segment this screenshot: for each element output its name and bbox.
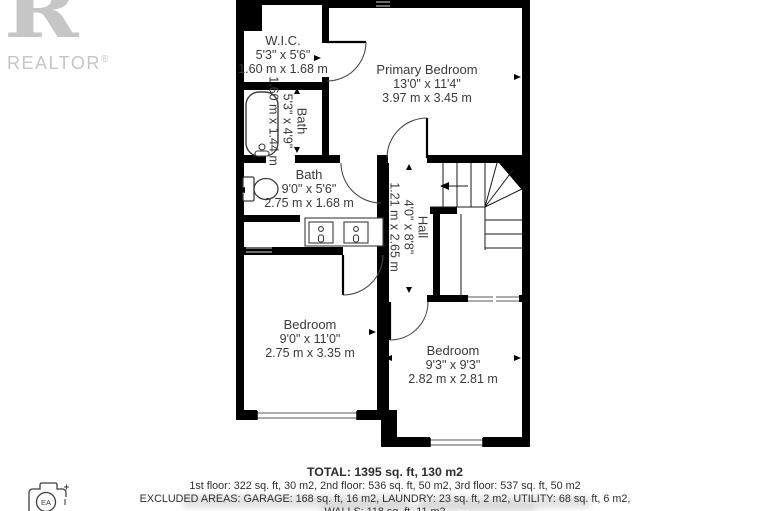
door-bedroom-right	[390, 302, 428, 340]
wall	[236, 215, 300, 222]
wall	[389, 437, 430, 447]
room-name: W.I.C.	[238, 33, 328, 48]
wall	[236, 0, 262, 31]
floor-areas-line: 1st floor: 322 sq. ft, 30 m2, 2nd floor:…	[115, 480, 655, 493]
room-dim-metric: 1.60 m x 1.68 m	[238, 62, 328, 76]
room-name: Bath	[264, 167, 354, 182]
excluded-areas-line: EXCLUDED AREAS: GARAGE: 168 sq. ft, 16 m…	[115, 493, 655, 506]
floor-plan-page: R REALTOR®	[0, 0, 767, 511]
wall	[377, 155, 388, 163]
registered-trademark-symbol: ®	[101, 54, 110, 65]
wall	[322, 77, 329, 163]
wall	[430, 207, 457, 214]
staircase	[430, 163, 524, 298]
room-dim-imperial: 5'3" x 4'9"	[281, 76, 295, 166]
wall	[433, 214, 440, 298]
door-wic	[327, 42, 366, 81]
room-dim-metric: 3.97 m x 3.45 m	[376, 91, 477, 105]
room-name: Bedroom	[265, 317, 355, 332]
window	[257, 410, 357, 420]
wall	[236, 155, 266, 163]
room-label-ensuite-bath: Bath 5'3" x 4'9" 1.60 m x 1.44 m	[267, 76, 310, 166]
room-name: Bedroom	[408, 343, 498, 358]
wall	[499, 163, 522, 190]
room-dim-metric: 2.82 m x 2.81 m	[408, 372, 498, 386]
realtor-logo-wordmark: REALTOR®	[7, 53, 110, 74]
room-dim-imperial: 4'0" x 8'8"	[402, 182, 416, 272]
room-label-hall: Hall 4'0" x 8'8" 1.21 m x 2.65 m	[388, 182, 431, 272]
total-area-line: TOTAL: 1395 sq. ft, 130 m2	[115, 464, 655, 480]
room-name: Bath	[295, 76, 310, 166]
door-primary-bedroom	[387, 118, 427, 158]
realtor-logo-r-glyph: R	[4, 0, 79, 49]
room-dim-metric: 1.60 m x 1.44 m	[267, 76, 281, 166]
area-summary: TOTAL: 1395 sq. ft, 130 m2 1st floor: 32…	[115, 464, 655, 511]
wall	[522, 8, 530, 447]
wall	[236, 410, 257, 420]
camera-badge-label: EA	[41, 498, 51, 507]
room-name: Primary Bedroom	[376, 62, 477, 77]
camera-icon: EA	[29, 483, 69, 511]
double-sink-vanity-icon	[305, 218, 383, 246]
wall	[236, 247, 343, 255]
room-label-primary-bedroom: Primary Bedroom 13'0" x 11'4" 3.97 m x 3…	[376, 62, 477, 105]
stair-direction-arrow	[440, 182, 449, 190]
room-dim-metric: 2.75 m x 3.35 m	[265, 346, 355, 360]
room-dim-imperial: 5'3" x 5'6"	[238, 48, 328, 62]
room-label-bedroom-left: Bedroom 9'0" x 11'0" 2.75 m x 3.35 m	[265, 317, 355, 360]
wall	[519, 295, 530, 302]
wall	[322, 0, 530, 8]
room-name: Hall	[416, 182, 431, 272]
room-label-main-bath: Bath 9'0" x 5'6" 2.75 m x 1.68 m	[264, 167, 354, 210]
room-dim-metric: 2.75 m x 1.68 m	[264, 196, 354, 210]
room-dim-imperial: 9'0" x 11'0"	[265, 332, 355, 346]
room-label-bedroom-right: Bedroom 9'3" x 9'3" 2.82 m x 2.81 m	[408, 343, 498, 386]
wall	[427, 155, 522, 163]
room-label-wic: W.I.C. 5'3" x 5'6" 1.60 m x 1.68 m	[238, 33, 328, 76]
room-dim-imperial: 13'0" x 11'4"	[376, 77, 477, 91]
wall	[483, 437, 530, 447]
room-dim-imperial: 9'3" x 9'3"	[408, 358, 498, 372]
wall	[260, 0, 322, 5]
window	[430, 437, 483, 447]
room-dim-imperial: 9'0" x 5'6"	[264, 182, 354, 196]
walls-area-line: WALLS: 118 sq. ft, 11 m2	[115, 506, 655, 511]
room-dim-metric: 1.21 m x 2.65 m	[388, 182, 402, 272]
